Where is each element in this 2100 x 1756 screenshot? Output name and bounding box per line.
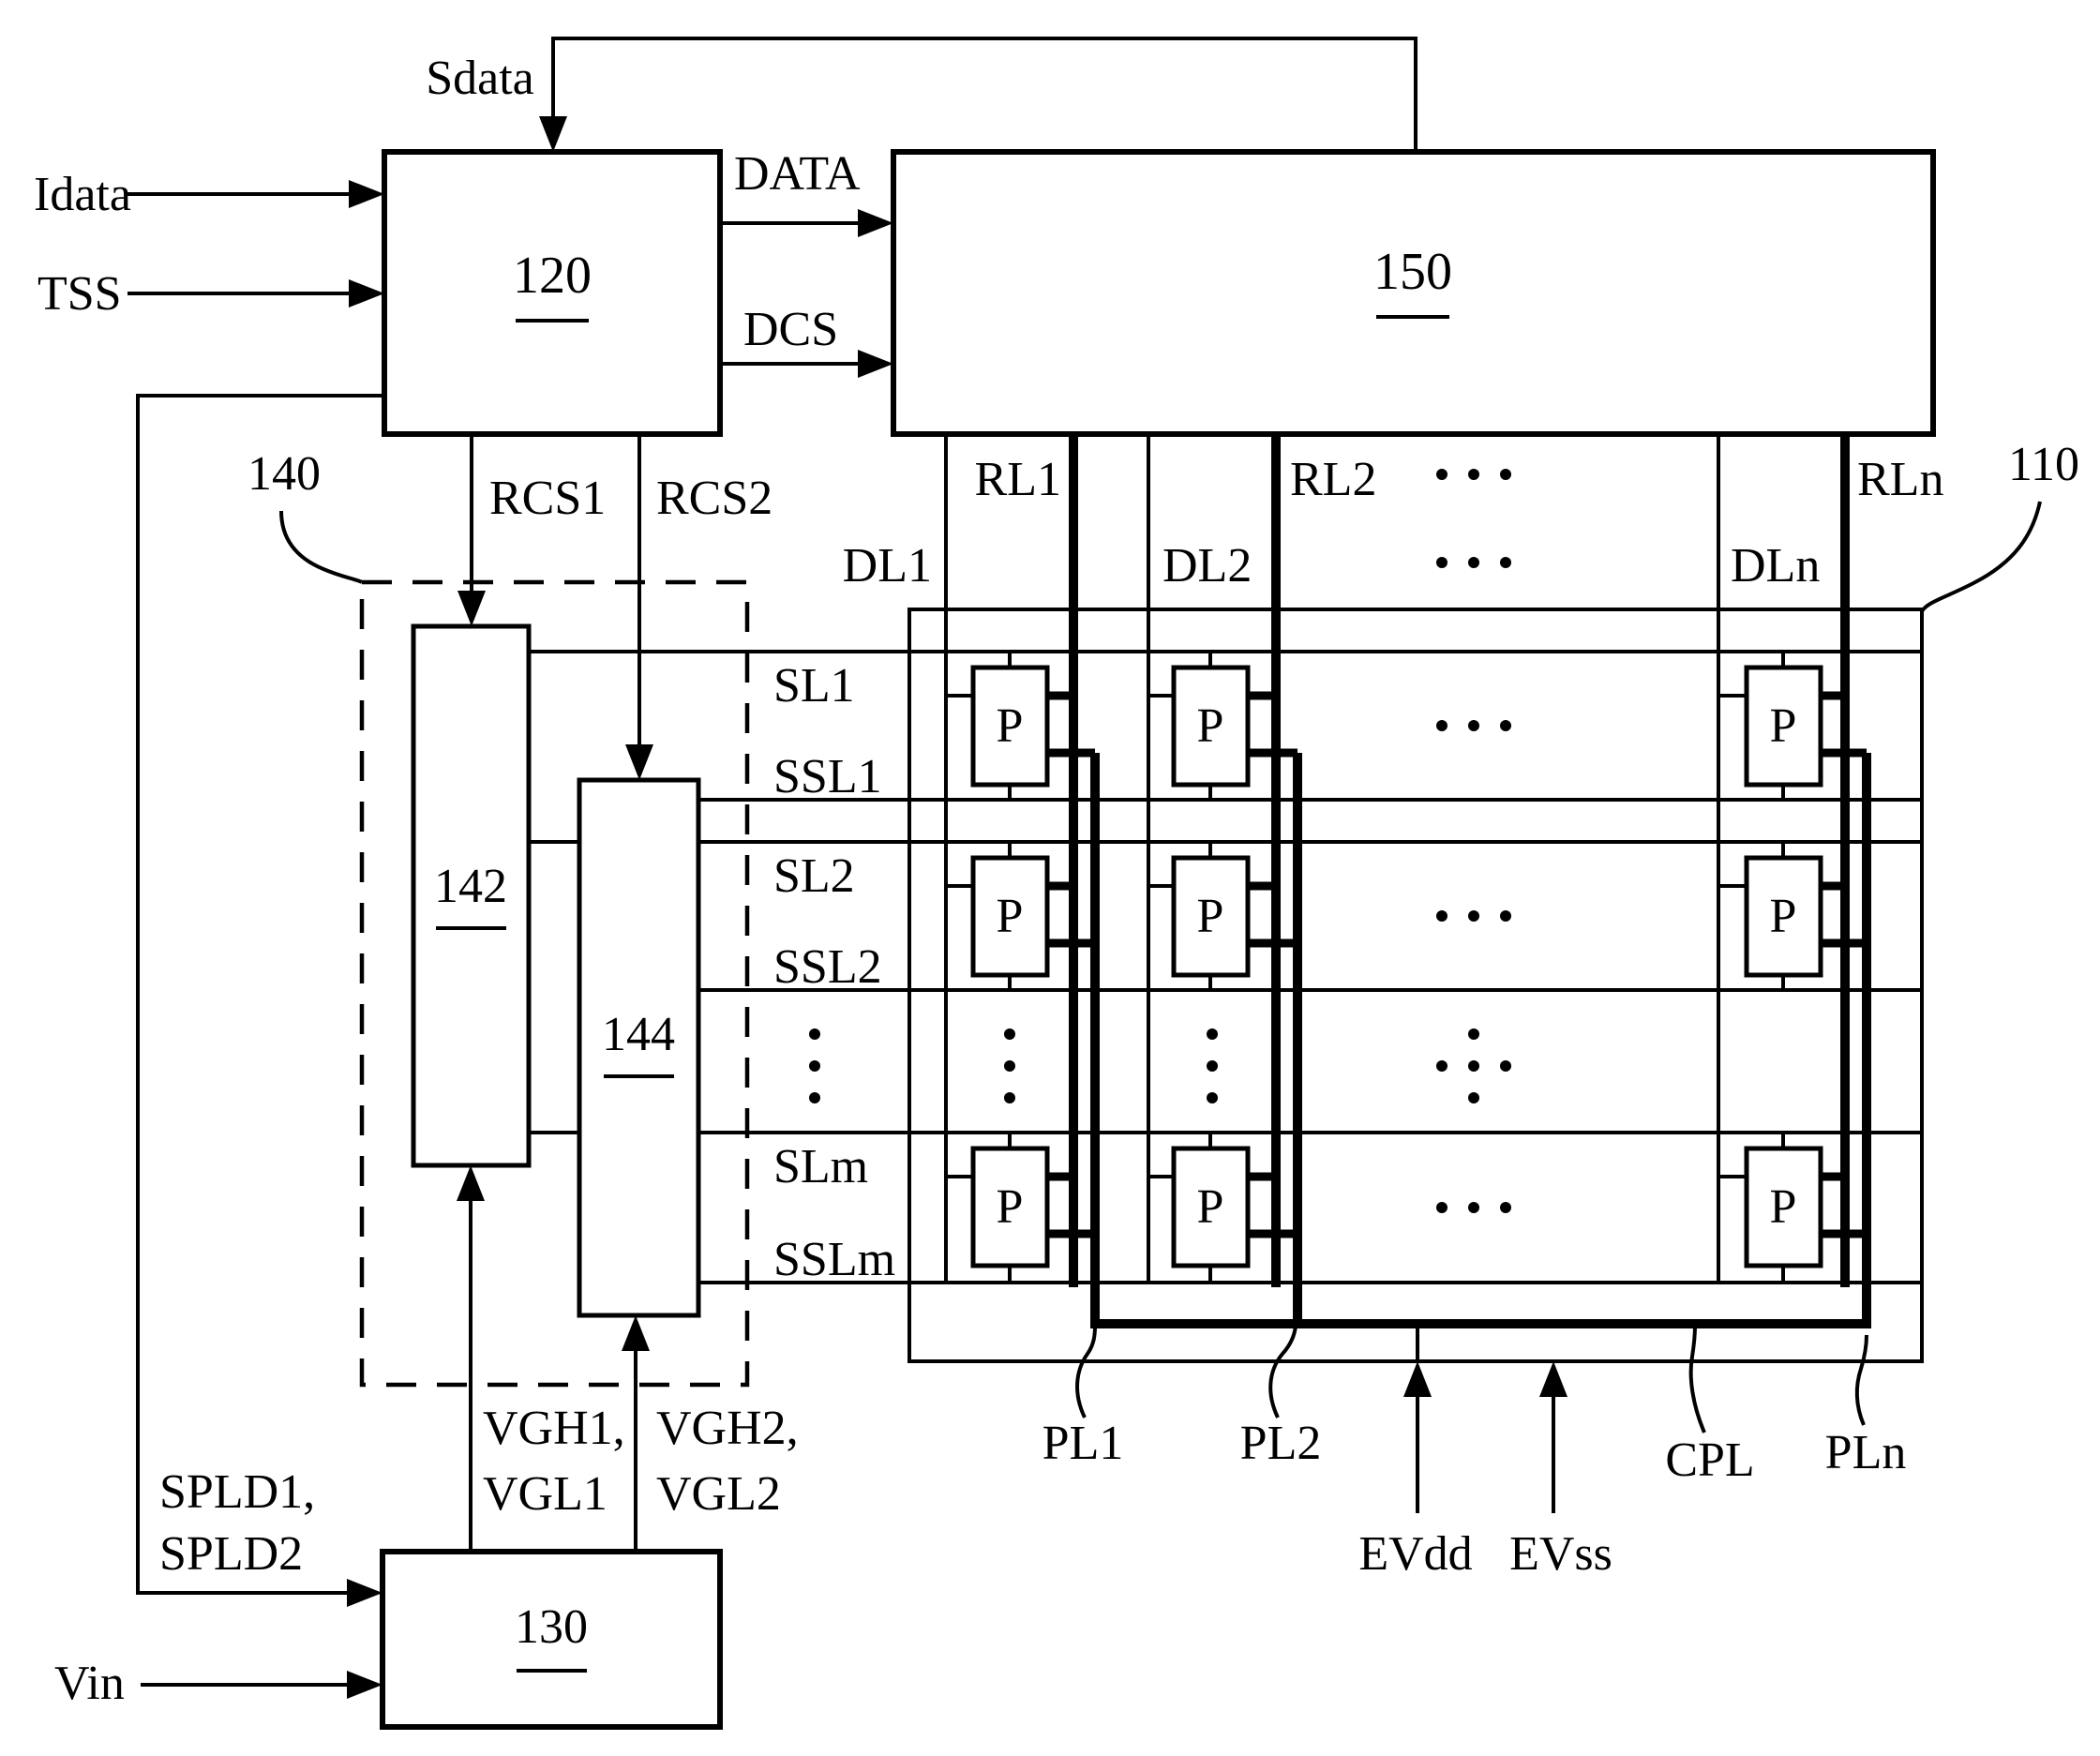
second-gate-driver-ref: 144: [602, 1008, 675, 1061]
sdata-label: Sdata: [426, 52, 534, 105]
power-labels: PL1 PL2 CPL PLn EVdd EVss: [1042, 1417, 1907, 1581]
evss-label: EVss: [1509, 1527, 1612, 1581]
pixel-label: P: [997, 699, 1024, 753]
display-panel-ref: 110: [2008, 438, 2079, 491]
vgh1-label: VGH1,: [483, 1402, 625, 1455]
ellipsis-cross-center: [1436, 1028, 1511, 1103]
ellipsis-vertical-label-column: [809, 1028, 820, 1103]
spld-label-line2: SPLD2: [159, 1527, 303, 1581]
vgh2-arrowhead: [622, 1315, 650, 1351]
dcs-arrowhead: [858, 350, 893, 378]
idata-arrowhead: [349, 180, 384, 208]
cpl-label: CPL: [1665, 1433, 1754, 1487]
power-supply-block: 130: [382, 1552, 720, 1727]
leader-cpl: [1691, 1326, 1704, 1433]
evdd-arrowhead: [1403, 1361, 1432, 1397]
pl2-label: PL2: [1240, 1417, 1322, 1470]
data-line-wires: [946, 434, 1718, 1283]
data-label: DATA: [734, 147, 861, 201]
controller-ref: 120: [513, 247, 592, 305]
gate-driver-unit-ref: 140: [247, 447, 321, 501]
dcs-label: DCS: [743, 303, 838, 356]
ellipsis-horizontal-pixel-rowm: [1436, 1202, 1511, 1213]
sdata-arrowhead: [539, 116, 567, 152]
power-supply-ref: 130: [515, 1600, 588, 1654]
ellipsis-vertical-column1: [1004, 1028, 1015, 1103]
rcs2-label: RCS2: [656, 472, 772, 525]
ellipsis-horizontal-pixel-row2: [1436, 910, 1511, 922]
pixel-label: P: [997, 1180, 1024, 1234]
leader-pln: [1857, 1335, 1867, 1425]
spld-arrowhead: [347, 1579, 382, 1607]
controller-block: 120: [384, 152, 720, 434]
power-line-wires: [1090, 753, 1871, 1361]
vgl2-label: VGL2: [656, 1467, 781, 1521]
data-driver-ref: 150: [1373, 243, 1452, 301]
vin-label: Vin: [54, 1657, 125, 1710]
data-driver-block: 150: [893, 152, 1933, 434]
pixel-label: P: [1770, 699, 1797, 753]
ssl2-label: SSL2: [773, 940, 882, 994]
pixel-label: P: [1197, 1180, 1224, 1234]
first-gate-driver-block: 142: [413, 626, 529, 1165]
rl1-label: RL1: [975, 453, 1061, 506]
sslm-label: SSLm: [773, 1233, 895, 1286]
evss-arrowhead: [1539, 1361, 1567, 1397]
pixel-label: P: [1770, 890, 1797, 943]
leader-140: [281, 511, 362, 582]
pixel-label: P: [1770, 1180, 1797, 1234]
dl1-label: DL1: [843, 539, 932, 593]
ellipsis-horizontal-rl-row: [1436, 469, 1511, 480]
rcs2-arrowhead: [625, 744, 653, 780]
pixel-label: P: [997, 890, 1024, 943]
tss-arrowhead: [349, 279, 384, 308]
leader-pl1: [1077, 1326, 1095, 1418]
tss-label: TSS: [37, 267, 122, 321]
pixel-array-cells: P P P P: [946, 652, 1867, 1283]
data-arrowhead: [858, 209, 893, 237]
sl1-label: SL1: [773, 659, 855, 713]
pixel-label: P: [1197, 699, 1224, 753]
pixel-label: P: [1197, 890, 1224, 943]
rl2-label: RL2: [1290, 453, 1376, 506]
vgl1-label: VGL1: [483, 1467, 607, 1521]
dl2-label: DL2: [1162, 539, 1252, 593]
idata-label: Idata: [34, 168, 131, 221]
second-gate-driver-block: 144: [579, 780, 698, 1315]
ellipsis-horizontal-pixel-row1: [1436, 720, 1511, 731]
rcs1-label: RCS1: [489, 472, 606, 525]
rln-label: RLn: [1857, 453, 1943, 506]
spld-label-line1: SPLD1,: [159, 1465, 315, 1519]
leader-pl2: [1270, 1326, 1296, 1418]
leader-110: [1922, 502, 2040, 611]
display-driver-diagram: P P P P: [0, 0, 2100, 1756]
pln-label: PLn: [1825, 1426, 1907, 1479]
slm-label: SLm: [773, 1140, 868, 1193]
rcs1-arrowhead: [457, 591, 486, 626]
first-gate-driver-ref: 142: [434, 860, 507, 913]
ellipsis-horizontal-dl-row: [1436, 557, 1511, 568]
vgh1-arrowhead: [457, 1165, 485, 1201]
pl1-label: PL1: [1042, 1417, 1124, 1470]
dln-label: DLn: [1731, 539, 1820, 593]
spld-wire: [138, 396, 384, 1593]
evdd-label: EVdd: [1358, 1527, 1472, 1581]
ssl1-label: SSL1: [773, 750, 882, 803]
ellipsis-vertical-column2: [1207, 1028, 1218, 1103]
sl2-label: SL2: [773, 849, 855, 903]
vin-arrowhead: [347, 1671, 382, 1699]
patent-figure: P P P P: [0, 0, 2100, 1756]
vgh2-label: VGH2,: [656, 1402, 799, 1455]
sdata-feedback-wire: [553, 38, 1416, 152]
